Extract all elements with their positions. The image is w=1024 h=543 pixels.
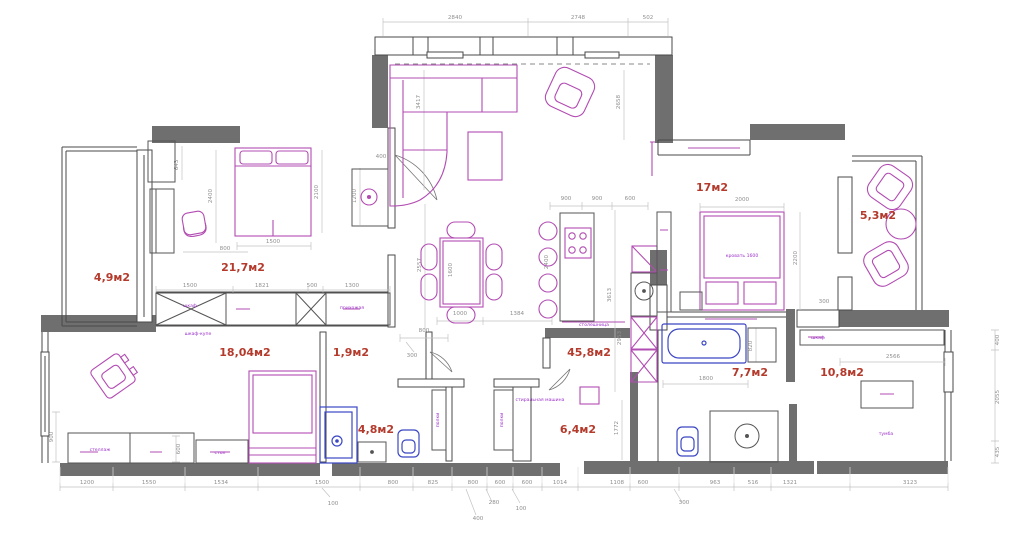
dim-text: 2748 xyxy=(571,15,586,21)
dim-text: 1384 xyxy=(510,311,525,317)
dim-text: 502 xyxy=(643,15,654,21)
wall-pier xyxy=(838,277,852,310)
dim-text: 2953 xyxy=(617,330,623,345)
room-label-balcony-left: 4,9м2 xyxy=(94,271,130,284)
dim-text: 1000 xyxy=(453,311,468,317)
dim-text: 1500 xyxy=(266,239,281,245)
dim-text: 900 xyxy=(561,196,572,202)
dim-text: 800 xyxy=(468,480,479,486)
room-label-hallway-small: 1,9м2 xyxy=(333,346,369,359)
dim-text: 1534 xyxy=(214,480,229,486)
dim-text: 1200 xyxy=(80,480,95,486)
dim-text: 1800 xyxy=(699,376,714,382)
dim-text: 1500 xyxy=(183,283,198,289)
dim-text: 3613 xyxy=(607,287,613,302)
window-band xyxy=(375,37,672,55)
dim-text: 2566 xyxy=(886,354,901,360)
dim-text: 600 xyxy=(495,480,506,486)
dim-text: 2200 xyxy=(793,250,799,265)
dim-text: 600 xyxy=(625,196,636,202)
furniture-label: полки xyxy=(436,413,441,428)
dim-text: 1772 xyxy=(614,421,620,435)
floor-plan-drawing: 4,9м2 21,7м2 18,04м2 1,9м2 4,8м2 45,8м2 … xyxy=(0,0,1024,543)
dim-text: 500 xyxy=(307,283,318,289)
dim-text: 516 xyxy=(748,480,759,486)
window-sill xyxy=(427,52,463,58)
dim-leader: 100 xyxy=(516,506,527,512)
dim-text: 1600 xyxy=(448,262,454,277)
room-label-wardrobe-room: 10,8м2 xyxy=(820,366,864,379)
dim-text: 800 xyxy=(220,246,231,252)
room-label-study: 18,04м2 xyxy=(219,346,270,359)
furniture-label: стеллаж xyxy=(90,448,111,453)
dim-text: 900 xyxy=(592,196,603,202)
bath-wall xyxy=(426,332,432,380)
dim-text: 1014 xyxy=(553,480,568,486)
dim-text: 300 xyxy=(819,299,830,305)
wall-cap xyxy=(494,379,539,387)
living-wall xyxy=(388,128,395,228)
lamp-dot xyxy=(368,196,371,199)
dim-text: 400 xyxy=(995,334,1001,345)
wall-cap xyxy=(398,379,464,387)
dim-text: 820 xyxy=(748,340,754,351)
dim-text: 2400 xyxy=(544,254,550,269)
furniture-label: столешница xyxy=(579,323,609,328)
dim-text: 435 xyxy=(995,446,1001,457)
dim-text: 1821 xyxy=(255,283,270,289)
sink-dot xyxy=(371,451,374,454)
dim-leader: 400 xyxy=(473,516,484,522)
furniture-label: полки xyxy=(500,413,505,428)
dim-text: 2100 xyxy=(314,184,320,199)
pier xyxy=(797,310,839,327)
wall-pier xyxy=(838,177,852,253)
dim-text: 1108 xyxy=(610,480,625,486)
dim-text: 825 xyxy=(428,480,439,486)
dim-text: 400 xyxy=(376,154,387,160)
washing-machine-dot xyxy=(746,435,749,438)
dim-leader: 300 xyxy=(679,500,690,506)
room-label-bathroom-big: 7,7м2 xyxy=(732,366,768,379)
furniture-label: стол xyxy=(215,451,226,456)
dim-text: 643 xyxy=(174,159,180,170)
dim-text: 800 xyxy=(419,328,430,334)
room-label-balcony-right: 5,3м2 xyxy=(860,209,896,222)
dim-text: 3123 xyxy=(903,480,918,486)
dim-text: 963 xyxy=(710,480,721,486)
furniture-label: прихожая xyxy=(340,306,364,311)
dim-text: 800 xyxy=(388,480,399,486)
dim-text: 2000 xyxy=(735,197,750,203)
furniture-label: тумба xyxy=(879,431,894,437)
dim-text: 1300 xyxy=(345,283,360,289)
dim-text: 600 xyxy=(522,480,533,486)
dim-leader: 280 xyxy=(489,500,500,506)
dim-text: 1321 xyxy=(783,480,798,486)
window-sill xyxy=(585,52,619,58)
room-label-corridor: 6,4м2 xyxy=(560,423,596,436)
furniture-label: кровать 1600 xyxy=(726,253,759,259)
dim-text: 600 xyxy=(176,443,182,454)
dim-text: 2840 xyxy=(448,15,463,21)
dim-text: 2400 xyxy=(208,188,214,203)
furniture-label: шкаф xyxy=(183,303,197,309)
dim-text: 1200 xyxy=(352,188,358,203)
room-label-bedroom-main: 21,7м2 xyxy=(221,261,265,274)
dim-text: 900 xyxy=(49,431,55,442)
dim-text: 3417 xyxy=(416,94,422,109)
furniture-label: шкаф-купе xyxy=(185,331,212,337)
kitchen-sink-dot xyxy=(643,290,646,293)
dim-text: 600 xyxy=(638,480,649,486)
room-label-bedroom-second: 17м2 xyxy=(696,181,728,194)
living-wall xyxy=(388,255,395,327)
dim-leader: 100 xyxy=(328,501,339,507)
room-label-bathroom-small: 4,8м2 xyxy=(358,423,394,436)
closet-wall xyxy=(446,387,452,461)
dim-text: 2557 xyxy=(417,257,423,272)
dim-text: 300 xyxy=(407,353,418,359)
corridor-wall xyxy=(543,338,550,368)
dim-text: 2055 xyxy=(995,389,1001,404)
dim-text: 2658 xyxy=(616,94,622,109)
room-label-kitchen-living: 45,8м2 xyxy=(567,346,611,359)
furniture-label: стиральная машина xyxy=(516,398,565,403)
dim-text: 1550 xyxy=(142,480,157,486)
dim-text: 1500 xyxy=(315,480,330,486)
floor-plan: 4,9м2 21,7м2 18,04м2 1,9м2 4,8м2 45,8м2 … xyxy=(0,0,1024,543)
shower-drain-dot xyxy=(336,440,338,442)
furniture-label: шкаф xyxy=(811,335,825,341)
